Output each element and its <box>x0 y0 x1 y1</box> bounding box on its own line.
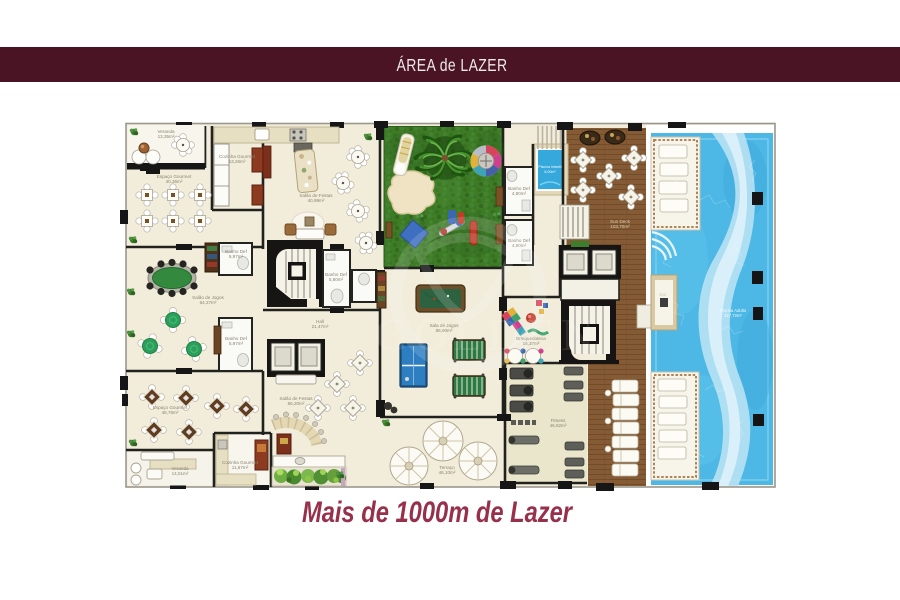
svg-text:5,97m²: 5,97m² <box>229 341 244 346</box>
svg-text:217,72m²: 217,72m² <box>724 313 742 318</box>
svg-text:46,10m²: 46,10m² <box>439 470 456 475</box>
svg-text:Piscina Infantil: Piscina Infantil <box>538 165 561 169</box>
svg-text:14,51m²: 14,51m² <box>172 471 189 476</box>
svg-text:6,97m²: 6,97m² <box>229 254 244 259</box>
svg-text:4,80m²: 4,80m² <box>512 191 527 196</box>
svg-text:103,70m²: 103,70m² <box>610 224 630 229</box>
svg-text:Bar: Bar <box>659 292 667 297</box>
svg-text:48,76m²: 48,76m² <box>162 410 179 415</box>
svg-text:11,67m²: 11,67m² <box>232 465 249 470</box>
svg-text:46,62m²: 46,62m² <box>550 423 567 428</box>
svg-text:40,36m²: 40,36m² <box>166 179 183 184</box>
svg-text:5,80m²: 5,80m² <box>329 277 344 282</box>
svg-text:13,26m²: 13,26m² <box>229 159 246 164</box>
svg-text:40,98m²: 40,98m² <box>308 198 325 203</box>
svg-text:64,27m²: 64,27m² <box>200 300 217 305</box>
svg-text:8,00m²: 8,00m² <box>544 170 556 174</box>
svg-text:21,47m²: 21,47m² <box>312 324 329 329</box>
svg-text:66,20m²: 66,20m² <box>288 401 305 406</box>
svg-text:13,35m²: 13,35m² <box>158 134 175 139</box>
svg-text:GOLDEN: GOLDEN <box>375 309 600 360</box>
